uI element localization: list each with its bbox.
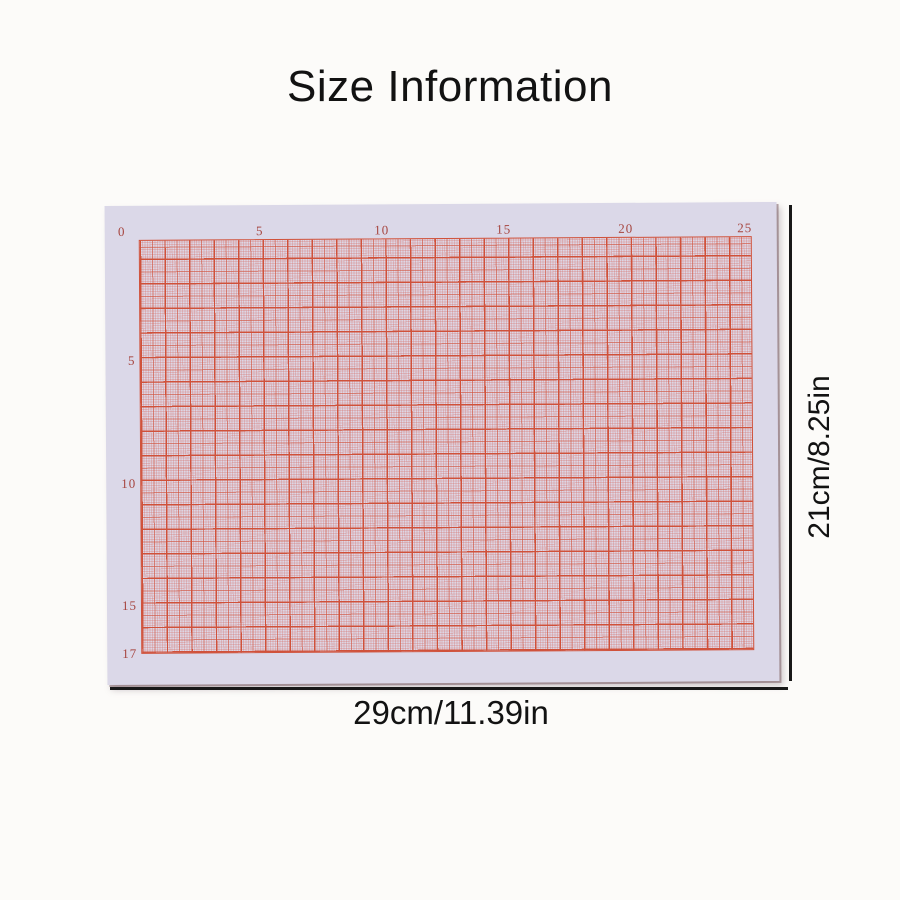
left-ruler-label: 10 xyxy=(112,477,136,490)
top-ruler-label: 15 xyxy=(496,223,511,236)
page-title: Size Information xyxy=(0,62,900,112)
width-dimension-line xyxy=(110,687,788,690)
graph-paper-sheet: 0 5 10 15 20 25 5 10 15 17 xyxy=(105,202,780,685)
top-ruler-label: 0 xyxy=(118,225,126,238)
left-ruler-label: 15 xyxy=(113,599,137,612)
height-size-label: 21cm/8.25in xyxy=(803,375,837,538)
millimeter-grid xyxy=(139,236,755,654)
top-ruler-label: 20 xyxy=(618,222,633,235)
width-size-label: 29cm/11.39in xyxy=(353,694,549,732)
height-dimension-line xyxy=(789,205,792,681)
top-ruler-label: 25 xyxy=(737,221,752,234)
top-ruler-label: 10 xyxy=(374,223,389,236)
left-ruler-label: 5 xyxy=(111,354,135,367)
top-ruler-label: 5 xyxy=(256,224,264,237)
left-ruler-label: 17 xyxy=(113,647,137,660)
